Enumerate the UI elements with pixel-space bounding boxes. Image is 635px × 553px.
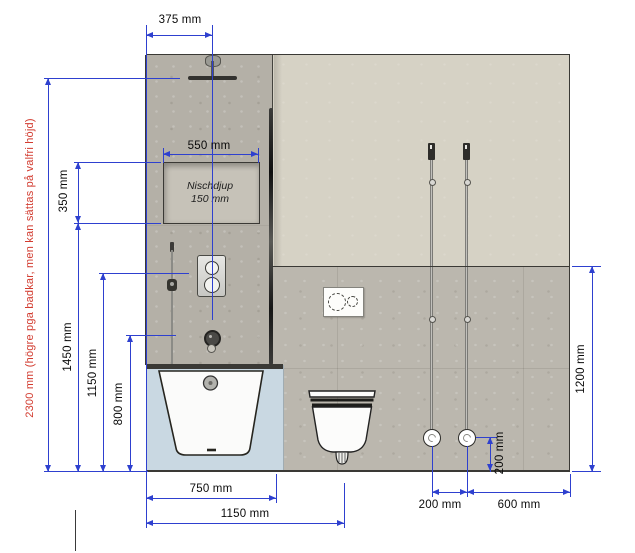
dim-arrow: [127, 465, 133, 472]
dim-line-350-1450: [78, 162, 79, 472]
dim-arrow: [487, 464, 493, 471]
extension-350-top: [74, 162, 161, 163]
tile-joint: [272, 368, 570, 369]
dim-arrow: [467, 489, 474, 495]
dim-arrow: [146, 32, 153, 38]
dim-line-375: [146, 35, 212, 36]
dim-arrow: [337, 520, 344, 526]
dim-label-1450: 1450 mm: [62, 322, 74, 371]
pipe-connector: [429, 179, 436, 186]
flush-button-small: [347, 296, 358, 307]
bath-spout-knob: [207, 344, 216, 353]
extension-2300-top: [44, 78, 180, 79]
niche-label: Nischdjup 150 mm: [187, 180, 233, 206]
dim-arrow: [163, 151, 170, 157]
ceiling-edge: [146, 54, 570, 56]
extension-wall-left: [146, 25, 147, 528]
dim-label-375: 375 mm: [159, 14, 202, 26]
dim-arrow: [75, 223, 81, 230]
dim-line-200-600: [432, 492, 570, 493]
dim-label-550: 550 mm: [188, 140, 231, 152]
dim-label-1150-bottom: 1150 mm: [221, 508, 269, 520]
extension-750-right: [276, 474, 277, 503]
dim-arrow: [100, 273, 106, 280]
dim-arrow: [563, 489, 570, 495]
extension-1150-right: [344, 483, 345, 528]
dim-arrow: [432, 489, 439, 495]
stray-mark: [75, 510, 77, 551]
right-wall-edge: [569, 54, 571, 472]
extension-niche-right: [258, 148, 259, 163]
dim-arrow: [589, 465, 595, 472]
dim-line-800: [130, 335, 131, 472]
dim-arrow: [487, 437, 493, 444]
tile-joint: [146, 225, 272, 226]
dim-label-1150-left: 1150 mm: [87, 349, 99, 397]
hand-shower-holder-dot: [170, 282, 174, 286]
dim-label-800: 800 mm: [113, 383, 125, 426]
dim-arrow: [205, 32, 212, 38]
bathroom-elevation-drawing: Nischdjup 150 mm: [0, 0, 635, 553]
dim-label-1200: 1200 mm: [575, 344, 587, 393]
floor-line: [146, 470, 570, 472]
upper-wall: [272, 55, 570, 267]
dim-line-2300: [48, 78, 49, 472]
glass-shadow: [274, 55, 282, 267]
dim-arrow: [100, 465, 106, 472]
dim-label-750: 750 mm: [190, 483, 233, 495]
wall-corner-line: [272, 55, 273, 110]
dim-arrow: [75, 162, 81, 169]
pipe-connector: [429, 316, 436, 323]
dim-label-350: 350 mm: [58, 170, 70, 213]
extension-350-bottom: [74, 223, 161, 224]
bath-spout-dot: [209, 335, 212, 338]
extension-800-top: [126, 335, 176, 336]
supply-pipe-right: [465, 150, 468, 431]
dim-arrow: [269, 495, 276, 501]
dim-arrow: [75, 216, 81, 223]
dim-arrow: [146, 495, 153, 501]
dim-arrow: [45, 78, 51, 85]
dim-arrow: [146, 520, 153, 526]
dim-line-1200: [592, 266, 593, 472]
dim-arrow: [45, 465, 51, 472]
niche-label-line2: 150 mm: [187, 193, 233, 206]
flush-button-large: [328, 293, 346, 311]
extension-1200-top: [572, 266, 601, 267]
pipe-connector: [464, 179, 471, 186]
dim-arrow: [251, 151, 258, 157]
dim-arrow: [75, 465, 81, 472]
tile-joint: [523, 267, 524, 472]
dim-label-200-vertical: 200 mm: [494, 432, 506, 475]
pipe-fitting-highlight: [430, 145, 432, 149]
note-2300: 2300 mm (högre pga badkar, men kan sätta…: [24, 118, 36, 417]
dim-label-200-bottom: 200 mm: [419, 499, 462, 511]
wall-hung-toilet: [306, 388, 378, 468]
dim-line-1150-left: [103, 273, 104, 472]
wall-material-boundary: [272, 266, 570, 268]
pipe-connector: [464, 316, 471, 323]
niche-label-line1: Nischdjup: [187, 180, 233, 193]
glass-partition: [269, 108, 274, 365]
shower-centerline: [212, 25, 213, 320]
dim-arrow: [589, 266, 595, 273]
dim-line-550: [163, 154, 258, 155]
dim-line-1150-bottom: [146, 523, 344, 524]
dim-line-750: [146, 498, 276, 499]
extension-1200-bottom: [572, 471, 601, 472]
dim-label-600: 600 mm: [498, 499, 541, 511]
dim-arrow: [127, 335, 133, 342]
pipe-fitting-highlight: [465, 145, 467, 149]
supply-pipe-left: [430, 150, 433, 431]
bathtub: [140, 360, 290, 475]
dim-arrow: [460, 489, 467, 495]
extension-1150-top: [99, 273, 189, 274]
extension-wall-right: [570, 474, 571, 497]
